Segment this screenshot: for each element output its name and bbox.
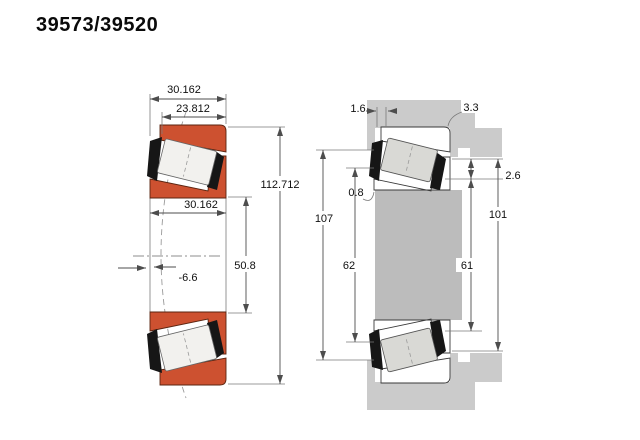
dim-outer-diameter: 112.712 (228, 127, 305, 384)
dim-label-face-offset-top: 1.6 (350, 103, 365, 115)
bearing-technical-drawing: 30.162 23.812 112.712 30.162 (0, 0, 640, 440)
dim-label-cone-width: 30.162 (184, 199, 218, 211)
dim-face-offset-side: 2.6 (445, 159, 521, 182)
page: 39573/39520 (0, 0, 640, 440)
dim-cone-width: 30.162 (150, 199, 226, 213)
right-mounting-view: 1.6 3.3 0.8 2.6 (310, 100, 521, 410)
housing-top-strip (367, 100, 375, 150)
dim-label-shaft-shoulder-diameter: 62 (343, 260, 355, 272)
dim-label-housing-recess-diameter: 107 (315, 213, 333, 225)
dim-label-total-width: 30.162 (167, 84, 201, 96)
dim-load-center: -6.6 (118, 267, 197, 284)
dim-label-face-offset-side: 2.6 (505, 170, 520, 182)
dim-label-load-center: -6.6 (179, 272, 198, 284)
housing-bottom-relief-notch (458, 353, 470, 362)
housing-top-shoulder (450, 128, 502, 157)
dim-fillet-shaft: 0.8 (348, 187, 374, 200)
housing-bottom-block (367, 382, 475, 410)
dim-label-bore-diameter: 50.8 (234, 260, 255, 272)
housing-bottom-shoulder (450, 353, 502, 382)
dim-bore-diameter: 50.8 (228, 197, 262, 313)
shaft-block (375, 190, 462, 320)
mounted-bearing-lower-half (369, 319, 450, 383)
dim-label-backing-shoulder-diameter: 61 (461, 260, 473, 272)
dim-housing-recess-diameter: 107 (310, 150, 374, 360)
mounted-bearing-upper-half (369, 127, 450, 191)
dim-label-outer-diameter: 112.712 (261, 179, 300, 191)
dim-label-cup-width: 23.812 (176, 103, 210, 115)
dim-label-fillet-shaft: 0.8 (348, 187, 363, 199)
bearing-upper-half (147, 125, 226, 198)
dim-label-fillet-housing: 3.3 (463, 102, 478, 114)
bearing-lower-half (147, 312, 226, 385)
dim-label-housing-shoulder-diameter: 101 (489, 209, 507, 221)
housing-top-relief-notch (458, 148, 470, 157)
left-section-view: 30.162 23.812 112.712 30.162 (118, 84, 305, 398)
housing-bottom-strip (367, 360, 375, 410)
housing-top-block (367, 100, 475, 128)
